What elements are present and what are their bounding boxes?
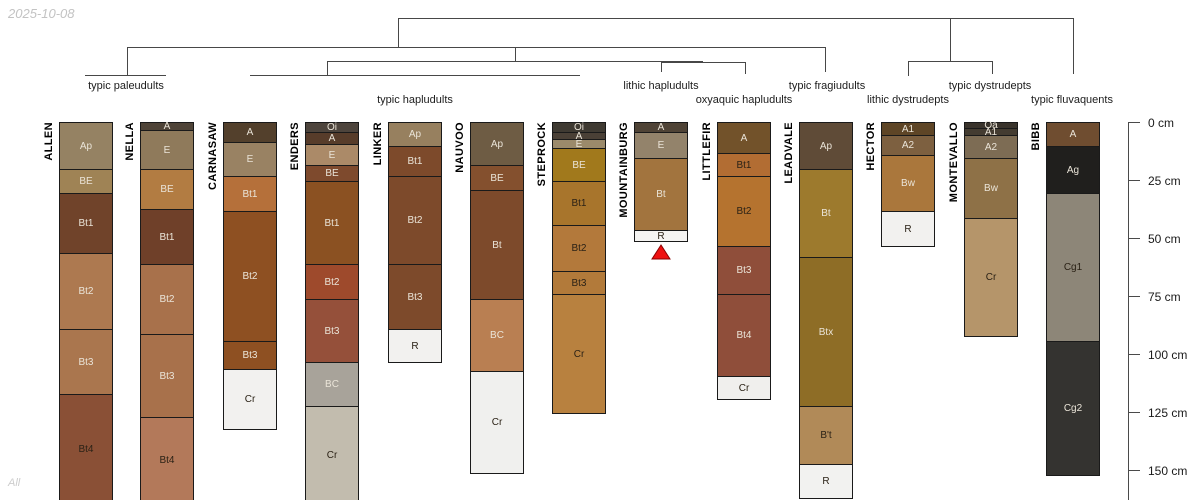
profile-column: ApBt1Bt2Bt3R bbox=[388, 122, 442, 363]
horizon-rect: A bbox=[306, 132, 358, 144]
horizon-rect: Ap bbox=[60, 123, 112, 169]
dendrogram-segment bbox=[327, 61, 703, 62]
horizon-rect: R bbox=[800, 464, 852, 498]
profile-column: OaA1A2BwCr bbox=[964, 122, 1018, 337]
horizon-label: R bbox=[657, 232, 664, 241]
horizon-label: A bbox=[329, 134, 336, 143]
profile-column: OiAEBEBt1Bt2Bt3Cr bbox=[552, 122, 606, 414]
horizon-rect: Btx bbox=[800, 257, 852, 406]
horizon-label: BE bbox=[160, 185, 173, 194]
horizon-rect: R bbox=[389, 329, 441, 362]
horizon-label: Ap bbox=[820, 142, 832, 151]
dendrogram-segment bbox=[992, 61, 993, 74]
horizon-rect: Bt4 bbox=[718, 294, 770, 376]
horizon-label: Cr bbox=[492, 418, 503, 427]
horizon-label: A1 bbox=[902, 125, 914, 134]
profile-column: AEBEBt1Bt2Bt3Bt4 bbox=[140, 122, 194, 500]
horizon-rect: Oi bbox=[306, 123, 358, 132]
dendrogram-segment bbox=[745, 62, 746, 74]
horizon-rect: B't bbox=[800, 406, 852, 464]
horizon-rect: Bt3 bbox=[141, 334, 193, 417]
horizon-label: Ap bbox=[80, 142, 92, 151]
taxon-label: oxyaquic hapludults bbox=[696, 94, 793, 106]
profile-name: STEPROCK bbox=[536, 122, 548, 186]
horizon-label: BC bbox=[490, 331, 504, 340]
horizon-label: R bbox=[411, 342, 418, 351]
taxon-label: lithic hapludults bbox=[623, 80, 698, 92]
dendrogram-segment bbox=[127, 47, 825, 48]
horizon-label: Bt2 bbox=[159, 295, 174, 304]
horizon-rect: Bt4 bbox=[141, 417, 193, 500]
horizon-label: Bt bbox=[492, 241, 501, 250]
horizon-rect: Cg1 bbox=[1047, 193, 1099, 341]
horizon-label: Bw bbox=[901, 179, 915, 188]
horizon-label: Bt1 bbox=[407, 157, 422, 166]
profile-name: MONTEVALLO bbox=[948, 122, 960, 202]
horizon-label: Cr bbox=[739, 384, 750, 393]
horizon-label: Ap bbox=[409, 130, 421, 139]
horizon-rect: Bt3 bbox=[60, 329, 112, 394]
horizon-label: Bt3 bbox=[159, 372, 174, 381]
horizon-label: R bbox=[822, 477, 829, 486]
horizon-label: A bbox=[247, 128, 254, 137]
horizon-rect: Bt3 bbox=[389, 264, 441, 329]
horizon-rect: Bt1 bbox=[553, 181, 605, 225]
profile-name: BIBB bbox=[1030, 122, 1042, 151]
depth-axis-tick-label: 75 cm bbox=[1148, 290, 1181, 304]
horizon-rect: BC bbox=[306, 362, 358, 406]
horizon-rect: Bw bbox=[965, 158, 1017, 218]
horizon-label: Bt2 bbox=[78, 287, 93, 296]
depth-axis-tick-label: 25 cm bbox=[1148, 174, 1181, 188]
horizon-label: Bt3 bbox=[78, 358, 93, 367]
horizon-rect: A2 bbox=[965, 135, 1017, 158]
profile-column: A1A2BwR bbox=[881, 122, 935, 247]
horizon-rect: E bbox=[224, 142, 276, 176]
horizon-label: Cr bbox=[245, 395, 256, 404]
depth-axis-tick-label: 50 cm bbox=[1148, 232, 1181, 246]
depth-axis-tick bbox=[1128, 470, 1140, 471]
horizon-label: Cg1 bbox=[1064, 263, 1082, 272]
horizon-rect: Bt1 bbox=[224, 176, 276, 211]
horizon-label: BC bbox=[325, 380, 339, 389]
horizon-label: BE bbox=[490, 174, 503, 183]
horizon-label: BE bbox=[79, 177, 92, 186]
horizon-rect: Cr bbox=[306, 406, 358, 500]
horizon-rect: Bt bbox=[635, 158, 687, 230]
dendrogram-segment bbox=[950, 18, 951, 61]
dendrogram-segment bbox=[85, 75, 166, 76]
profile-column: ApBEBt1Bt2Bt3Bt4 bbox=[59, 122, 113, 500]
horizon-label: Bt1 bbox=[736, 161, 751, 170]
horizon-rect: Bt3 bbox=[553, 271, 605, 294]
profile-name: LINKER bbox=[372, 122, 384, 165]
dendrogram-segment bbox=[908, 61, 992, 62]
horizon-rect: Bt2 bbox=[141, 264, 193, 334]
soil-dendrogram-plot: 2025-10-08 All typic paleudultstypic hap… bbox=[0, 0, 1200, 500]
depth-axis-line bbox=[1128, 122, 1129, 500]
horizon-rect: Ap bbox=[471, 123, 523, 165]
horizon-label: E bbox=[576, 140, 583, 149]
horizon-rect: A1 bbox=[965, 128, 1017, 135]
horizon-rect: BE bbox=[60, 169, 112, 193]
horizon-label: Bt2 bbox=[242, 272, 257, 281]
profile-column: AAgCg1Cg2 bbox=[1046, 122, 1100, 476]
horizon-label: Bt2 bbox=[736, 207, 751, 216]
dendrogram-segment bbox=[398, 18, 1073, 19]
horizon-rect: R bbox=[635, 230, 687, 241]
horizon-label: A bbox=[658, 123, 665, 132]
horizon-label: Bt1 bbox=[242, 190, 257, 199]
dendrogram-segment bbox=[327, 61, 328, 75]
depth-axis-tick-label: 0 cm bbox=[1148, 116, 1174, 130]
depth-axis-tick-label: 125 cm bbox=[1148, 406, 1187, 420]
date-label: 2025-10-08 bbox=[8, 6, 75, 21]
footer-label: All bbox=[8, 477, 20, 489]
depth-axis-tick bbox=[1128, 412, 1140, 413]
taxon-label: typic paleudults bbox=[88, 80, 164, 92]
horizon-label: Bt4 bbox=[159, 456, 174, 465]
dendrogram-segment bbox=[398, 18, 399, 47]
depth-axis-tick bbox=[1128, 180, 1140, 181]
horizon-rect: BE bbox=[306, 165, 358, 181]
horizon-label: Cg2 bbox=[1064, 404, 1082, 413]
profile-name: NELLA bbox=[124, 122, 136, 161]
horizon-label: Bt3 bbox=[736, 266, 751, 275]
horizon-label: Bt3 bbox=[571, 279, 586, 288]
horizon-label: Btx bbox=[819, 328, 833, 337]
profile-column: ApBEBtBCCr bbox=[470, 122, 524, 474]
horizon-rect: Ap bbox=[389, 123, 441, 146]
horizon-label: Bt bbox=[821, 209, 830, 218]
horizon-label: Bt2 bbox=[407, 216, 422, 225]
horizon-rect: Cr bbox=[718, 376, 770, 399]
profile-name: LITTLEFIR bbox=[701, 122, 713, 181]
horizon-label: A2 bbox=[902, 141, 914, 150]
horizon-rect: Cr bbox=[553, 294, 605, 413]
horizon-label: E bbox=[658, 141, 665, 150]
horizon-label: A bbox=[1070, 130, 1077, 139]
horizon-rect: Cr bbox=[224, 369, 276, 429]
horizon-rect: R bbox=[882, 211, 934, 246]
dendrogram-segment bbox=[825, 47, 826, 72]
horizon-label: A2 bbox=[985, 143, 997, 152]
depth-axis-tick-label: 150 cm bbox=[1148, 464, 1187, 478]
profile-name: MOUNTAINBURG bbox=[618, 122, 630, 218]
horizon-label: Bt2 bbox=[571, 244, 586, 253]
horizon-label: Bw bbox=[984, 184, 998, 193]
profile-name: NAUVOO bbox=[454, 122, 466, 173]
horizon-label: A bbox=[741, 134, 748, 143]
profile-name: ENDERS bbox=[289, 122, 301, 170]
horizon-rect: Cr bbox=[965, 218, 1017, 336]
horizon-rect: E bbox=[635, 132, 687, 158]
dendrogram-segment bbox=[515, 47, 516, 61]
horizon-rect: BC bbox=[471, 299, 523, 371]
taxon-label: lithic dystrudepts bbox=[867, 94, 949, 106]
profile-column: ABt1Bt2Bt3Bt4Cr bbox=[717, 122, 771, 400]
horizon-rect: E bbox=[141, 130, 193, 169]
dendrogram-segment bbox=[127, 47, 128, 75]
horizon-label: Bt4 bbox=[736, 331, 751, 340]
horizon-label: Bt bbox=[656, 190, 665, 199]
horizon-label: Cr bbox=[574, 350, 585, 359]
horizon-label: Ap bbox=[491, 140, 503, 149]
horizon-rect: A bbox=[635, 123, 687, 132]
flag-triangle-icon bbox=[651, 244, 671, 265]
horizon-rect: A2 bbox=[882, 135, 934, 155]
taxon-label: typic fluvaquents bbox=[1031, 94, 1113, 106]
taxon-label: typic dystrudepts bbox=[949, 80, 1032, 92]
depth-axis-tick bbox=[1128, 238, 1140, 239]
horizon-label: BE bbox=[572, 161, 585, 170]
horizon-rect: Bt1 bbox=[306, 181, 358, 264]
depth-axis-tick bbox=[1128, 122, 1140, 123]
horizon-label: A bbox=[164, 122, 171, 131]
depth-axis-tick bbox=[1128, 354, 1140, 355]
horizon-rect: Bt3 bbox=[306, 299, 358, 362]
horizon-label: Bt4 bbox=[78, 445, 93, 454]
horizon-rect: Bt2 bbox=[718, 176, 770, 246]
depth-axis-tick bbox=[1128, 296, 1140, 297]
dendrogram-segment bbox=[250, 75, 580, 76]
horizon-label: BE bbox=[325, 169, 338, 178]
taxon-label: typic fragiudults bbox=[789, 80, 865, 92]
dendrogram-segment bbox=[661, 62, 745, 63]
profile-column: ApBtBtxB'tR bbox=[799, 122, 853, 499]
horizon-label: Bt1 bbox=[78, 219, 93, 228]
profile-name: LEADVALE bbox=[783, 122, 795, 184]
horizon-label: E bbox=[164, 146, 171, 155]
horizon-rect: Cg2 bbox=[1047, 341, 1099, 475]
horizon-rect: BE bbox=[141, 169, 193, 209]
horizon-rect: A bbox=[224, 123, 276, 142]
dendrogram-segment bbox=[1073, 18, 1074, 74]
horizon-rect: Bt4 bbox=[60, 394, 112, 500]
horizon-rect: Ap bbox=[800, 123, 852, 169]
horizon-rect: Cr bbox=[471, 371, 523, 473]
profile-name: CARNASAW bbox=[207, 122, 219, 190]
profile-column: AEBtR bbox=[634, 122, 688, 242]
horizon-label: R bbox=[904, 225, 911, 234]
depth-axis-tick-label: 100 cm bbox=[1148, 348, 1187, 362]
profile-column: OiAEBEBt1Bt2Bt3BCCr bbox=[305, 122, 359, 500]
horizon-rect: Bt bbox=[471, 190, 523, 299]
horizon-label: Bt1 bbox=[159, 233, 174, 242]
horizon-rect: Ag bbox=[1047, 146, 1099, 193]
horizon-label: Cr bbox=[327, 451, 338, 460]
horizon-label: Bt3 bbox=[407, 293, 422, 302]
horizon-label: E bbox=[247, 155, 254, 164]
horizon-rect: Bt2 bbox=[389, 176, 441, 264]
profile-name: ALLEN bbox=[43, 122, 55, 161]
horizon-label: Bt1 bbox=[571, 199, 586, 208]
horizon-rect: Bt1 bbox=[389, 146, 441, 176]
horizon-label: Bt3 bbox=[242, 351, 257, 360]
horizon-rect: A1 bbox=[882, 123, 934, 135]
dendrogram-segment bbox=[661, 62, 662, 72]
horizon-rect: A bbox=[553, 132, 605, 139]
horizon-label: Ag bbox=[1067, 166, 1079, 175]
horizon-rect: Bt1 bbox=[60, 193, 112, 253]
horizon-label: B't bbox=[820, 431, 831, 440]
horizon-label: Bt2 bbox=[324, 278, 339, 287]
horizon-rect: E bbox=[553, 139, 605, 148]
horizon-label: A1 bbox=[985, 128, 997, 137]
horizon-rect: BE bbox=[553, 148, 605, 181]
horizon-rect: A bbox=[141, 123, 193, 130]
horizon-label: Bt1 bbox=[324, 219, 339, 228]
taxon-label: typic hapludults bbox=[377, 94, 453, 106]
profile-name: HECTOR bbox=[865, 122, 877, 171]
horizon-rect: Bt1 bbox=[718, 153, 770, 176]
horizon-rect: E bbox=[306, 144, 358, 165]
horizon-rect: Bt3 bbox=[224, 341, 276, 369]
horizon-rect: A bbox=[718, 123, 770, 153]
horizon-rect: Bt2 bbox=[224, 211, 276, 341]
horizon-label: E bbox=[329, 151, 336, 160]
horizon-rect: Bt1 bbox=[141, 209, 193, 264]
horizon-rect: Bt2 bbox=[306, 264, 358, 299]
horizon-rect: Bt3 bbox=[718, 246, 770, 294]
horizon-rect: Bt2 bbox=[553, 225, 605, 271]
horizon-label: Bt3 bbox=[324, 327, 339, 336]
horizon-label: Oi bbox=[327, 123, 337, 132]
horizon-label: Cr bbox=[986, 273, 997, 282]
dendrogram-segment bbox=[908, 61, 909, 76]
horizon-rect: Bt2 bbox=[60, 253, 112, 329]
profile-column: AEBt1Bt2Bt3Cr bbox=[223, 122, 277, 430]
horizon-rect: BE bbox=[471, 165, 523, 190]
horizon-rect: A bbox=[1047, 123, 1099, 146]
horizon-rect: Bw bbox=[882, 155, 934, 211]
horizon-rect: Bt bbox=[800, 169, 852, 257]
